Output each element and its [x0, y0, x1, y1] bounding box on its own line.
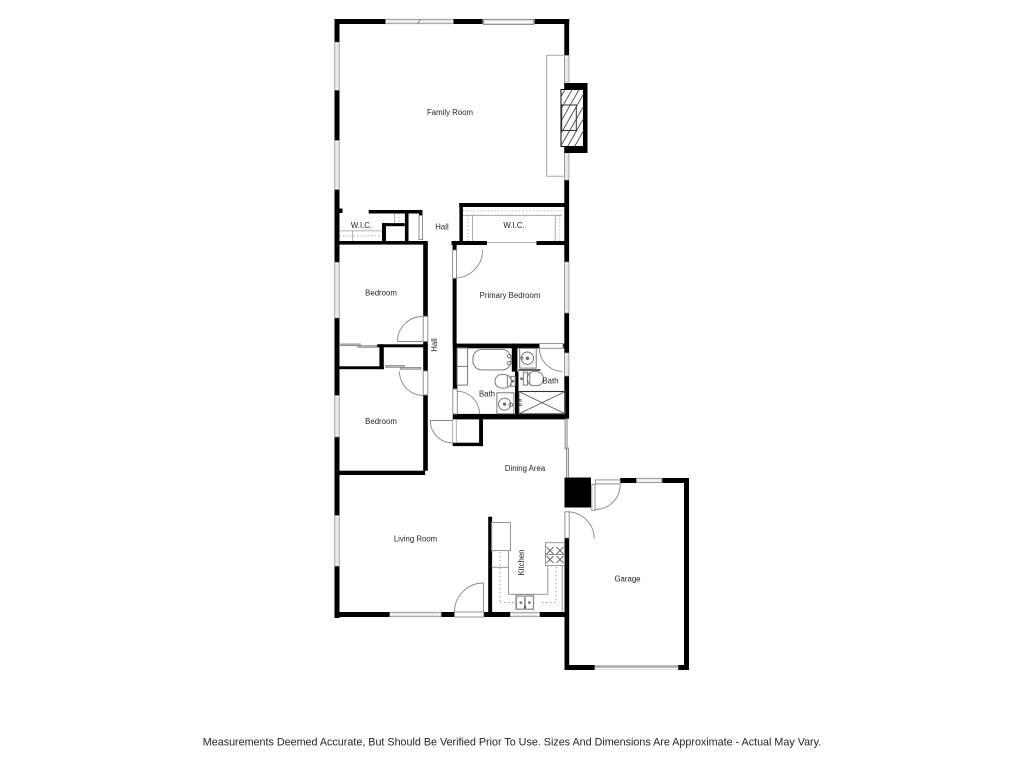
svg-text:Hall: Hall [430, 338, 439, 352]
svg-text:Family Room: Family Room [427, 108, 473, 117]
svg-text:Garage: Garage [614, 575, 640, 584]
svg-text:Bedroom: Bedroom [365, 289, 397, 298]
svg-text:Living Room: Living Room [394, 535, 437, 544]
svg-text:Bath: Bath [542, 377, 558, 386]
svg-text:Hall: Hall [435, 223, 449, 232]
svg-text:Measurements Deemed Accurate,: Measurements Deemed Accurate, But Should… [203, 737, 821, 749]
svg-text:Dining Area: Dining Area [505, 464, 546, 473]
svg-text:W.I.C.: W.I.C. [503, 221, 524, 230]
svg-text:Primary Bedroom: Primary Bedroom [480, 291, 541, 300]
svg-text:Kitchen: Kitchen [517, 549, 526, 575]
svg-text:W.I.C.: W.I.C. [351, 221, 372, 230]
svg-text:Bath: Bath [479, 390, 495, 399]
svg-text:Bedroom: Bedroom [365, 417, 397, 426]
